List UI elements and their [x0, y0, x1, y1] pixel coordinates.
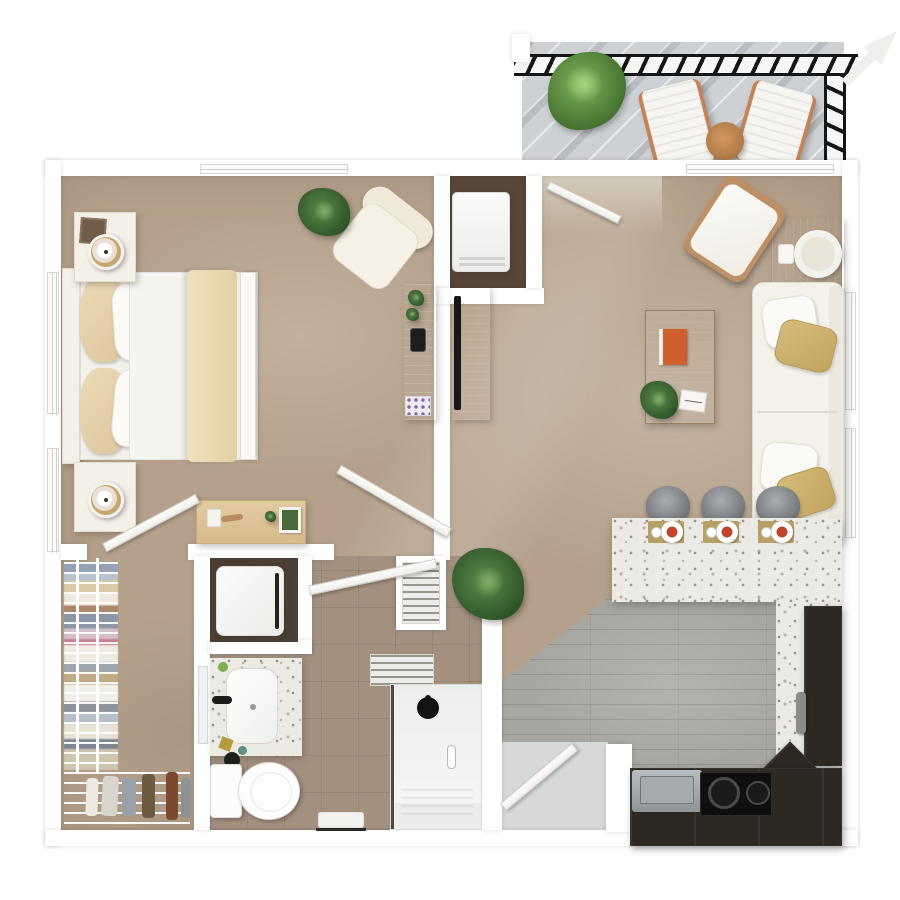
closet-wire-rack-left [64, 562, 118, 770]
balcony [0, 0, 900, 176]
media-console [452, 286, 490, 420]
washer-dryer [216, 566, 284, 636]
plate-1 [661, 521, 683, 543]
round-tray [794, 230, 842, 278]
living-side-table [772, 218, 844, 290]
vanity-faucet [212, 696, 232, 704]
toilet [210, 762, 302, 822]
vanity-counter [210, 658, 302, 756]
kitchen-sink [632, 770, 702, 812]
desk-plant [265, 511, 276, 522]
burner-small [746, 781, 770, 805]
lamp-bottom [88, 482, 124, 518]
shower-door-handle [447, 745, 456, 769]
bed-footboard [240, 272, 256, 460]
shower [390, 684, 482, 830]
shoe-pair-1 [85, 778, 98, 816]
shoe-pair-3 [122, 778, 136, 816]
shower-rain-head [417, 697, 439, 719]
tray-cup [778, 244, 794, 264]
desk-frame [279, 507, 301, 533]
vanity-sink [226, 668, 278, 744]
golf-bag [166, 772, 178, 820]
living-window-right-1 [845, 292, 856, 410]
bedroom-window-left-2 [47, 448, 59, 552]
console-plant-1 [408, 290, 424, 306]
shoe-pair-4 [181, 778, 191, 818]
cup-1 [651, 527, 662, 538]
closet-rail-2 [96, 558, 99, 774]
towel-bar [316, 828, 366, 831]
cup-3 [761, 527, 772, 538]
console-plant-2 [406, 308, 419, 321]
shower-glass-panel [391, 685, 394, 829]
coffee-table-plant [640, 381, 678, 419]
balcony-railing-right [824, 76, 846, 164]
bedroom-plant [298, 188, 350, 236]
boots [142, 774, 155, 818]
living-window-top [686, 164, 834, 174]
shoe-pair-2 [101, 776, 119, 817]
balcony-side-table [706, 122, 744, 160]
vanity-decor-gold [218, 736, 233, 751]
closet-shoe-rack [64, 772, 190, 828]
balcony-post [512, 34, 530, 62]
bedroom-window-left-1 [47, 272, 59, 414]
fridge-handle [796, 692, 806, 734]
bed-throw-blanket [187, 270, 237, 462]
console-tray [405, 396, 431, 416]
cup-2 [706, 527, 717, 538]
bedroom-window-top [200, 164, 348, 174]
closet-rail-1 [76, 558, 79, 774]
lamp-top [88, 234, 124, 270]
plate-2 [716, 521, 738, 543]
coffee-table [645, 310, 715, 424]
tv-screen [454, 296, 461, 410]
plate-3 [771, 521, 793, 543]
refrigerator [804, 606, 842, 766]
bedroom-console [404, 284, 436, 420]
desk-box [207, 509, 221, 527]
burner-large [708, 777, 740, 809]
desk-wood-decor [221, 513, 244, 522]
cooktop [700, 772, 772, 816]
bedroom-desk [196, 500, 306, 544]
coffee-table-notepad [679, 389, 708, 412]
coffee-table-book [659, 329, 687, 365]
bed-headboard [62, 268, 80, 464]
bathroom-mirror [198, 666, 208, 744]
vanity-soap [218, 662, 228, 672]
console-phone [410, 328, 426, 352]
kitchen [450, 486, 842, 846]
walk-in-closet [61, 556, 194, 830]
vanity-decor-teal [238, 746, 247, 755]
utility-appliance [452, 192, 510, 272]
bath-mat [318, 812, 364, 828]
floor-plan-scene [0, 0, 900, 900]
living-window-right-2 [845, 428, 856, 538]
bathroom [194, 556, 502, 846]
